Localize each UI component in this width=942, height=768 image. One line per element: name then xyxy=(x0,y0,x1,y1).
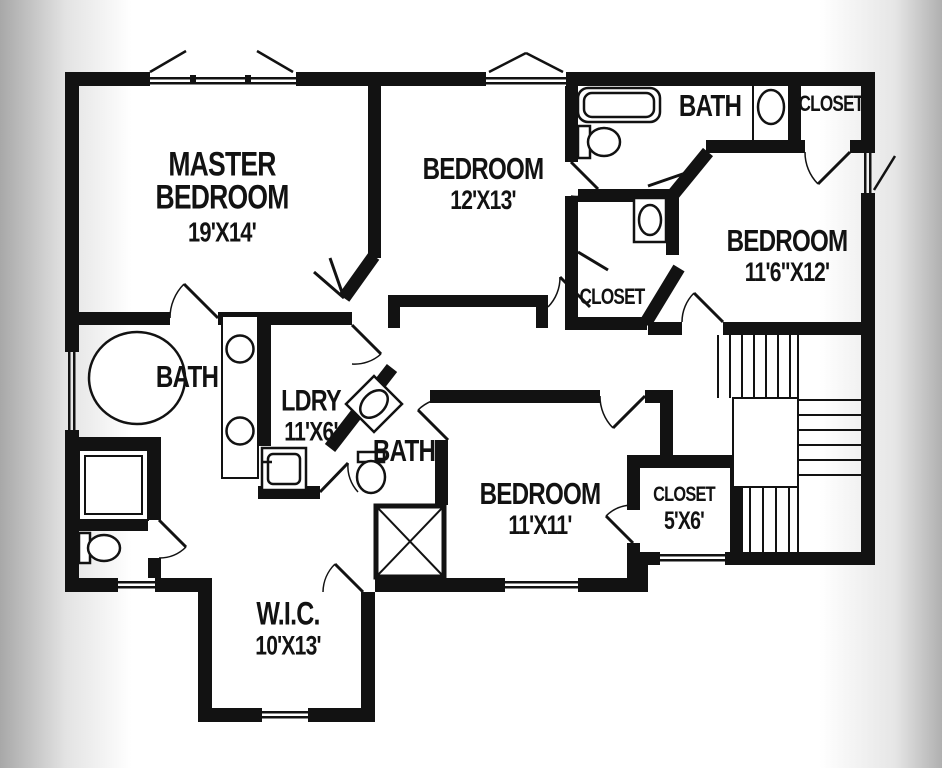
room-label-bath-middle: BATH xyxy=(373,436,435,466)
room-label-bedroom-right: BEDROOM 11'6"X12' xyxy=(727,226,848,286)
room-label-closet-hall: CLOSET xyxy=(580,286,645,308)
room-dims: 10'X13' xyxy=(255,633,320,659)
room-name: LDRY xyxy=(281,387,341,416)
room-dims: 12'X13' xyxy=(450,187,515,213)
room-dims: 11'X6' xyxy=(284,419,337,445)
attic-chase-icon xyxy=(376,506,444,577)
toilet-icon xyxy=(578,126,620,158)
room-dims: 11'6"X12' xyxy=(745,259,829,285)
room-label-master-bedroom: MASTER BEDROOM 19'X14' xyxy=(154,148,291,245)
room-name: BEDROOM xyxy=(423,154,544,184)
room-name: BATH xyxy=(156,362,218,392)
room-label-laundry: LDRY 11'X6' xyxy=(281,387,341,446)
room-label-closet-top-right: CLOSET xyxy=(799,93,864,115)
room-name: CLOSET xyxy=(653,485,715,506)
bathtub-icon xyxy=(578,88,660,122)
room-label-walk-in-closet: W.I.C. 10'X13' xyxy=(255,599,320,660)
shower-stall-icon xyxy=(79,450,148,520)
room-name: BATH xyxy=(679,91,741,121)
room-name: BEDROOM xyxy=(727,226,848,256)
room-name: BEDROOM xyxy=(480,479,601,509)
room-name: MASTER BEDROOM xyxy=(154,148,291,215)
room-dims: 11'X11' xyxy=(508,512,571,538)
room-label-bedroom-bottom: BEDROOM 11'X11' xyxy=(480,479,601,539)
oval-sink-icon xyxy=(753,86,784,140)
small-vanity-icon xyxy=(634,198,666,242)
room-dims: 5'X6' xyxy=(664,509,704,534)
room-name: CLOSET xyxy=(580,286,645,308)
room-label-bath-hall: BATH xyxy=(679,91,741,121)
room-label-closet-bottom: CLOSET 5'X6' xyxy=(653,485,715,533)
washer-icon xyxy=(262,448,306,490)
room-dims: 19'X14' xyxy=(188,218,256,245)
room-label-bedroom-top: BEDROOM 12'X13' xyxy=(423,154,544,214)
floorplan-image: MASTER BEDROOM 19'X14' BEDROOM 12'X13' B… xyxy=(0,0,942,768)
double-vanity-icon xyxy=(222,316,258,478)
room-name: BATH xyxy=(373,436,435,466)
room-name: W.I.C. xyxy=(256,599,319,630)
room-name: CLOSET xyxy=(799,93,864,115)
room-label-bath-master: BATH xyxy=(156,362,218,392)
toilet-left-icon xyxy=(79,533,120,563)
